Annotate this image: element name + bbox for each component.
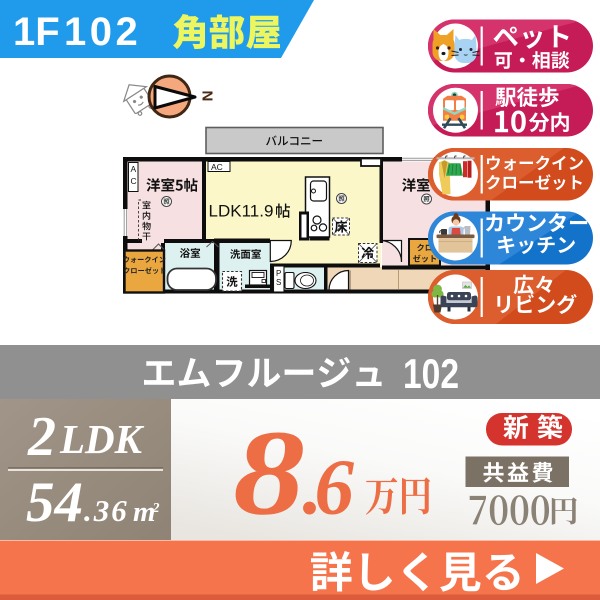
svg-text:AC: AC xyxy=(211,162,223,172)
svg-text:N: N xyxy=(199,91,216,102)
svg-text:102: 102 xyxy=(403,350,459,397)
svg-text:102: 102 xyxy=(64,10,141,54)
svg-text:A: A xyxy=(131,164,137,174)
svg-text:LDK: LDK xyxy=(59,416,145,462)
svg-text:1F: 1F xyxy=(13,10,60,54)
svg-text:2: 2 xyxy=(152,501,160,516)
svg-text:.36: .36 xyxy=(84,493,129,528)
svg-text:C: C xyxy=(131,176,137,186)
svg-text:2: 2 xyxy=(27,406,56,468)
svg-text:LDK11.9: LDK11.9 xyxy=(209,202,274,221)
svg-text:54: 54 xyxy=(26,471,83,534)
svg-text:6: 6 xyxy=(315,445,355,532)
svg-text:8: 8 xyxy=(233,406,305,541)
svg-text:S: S xyxy=(276,278,281,287)
svg-text:P: P xyxy=(276,269,281,278)
